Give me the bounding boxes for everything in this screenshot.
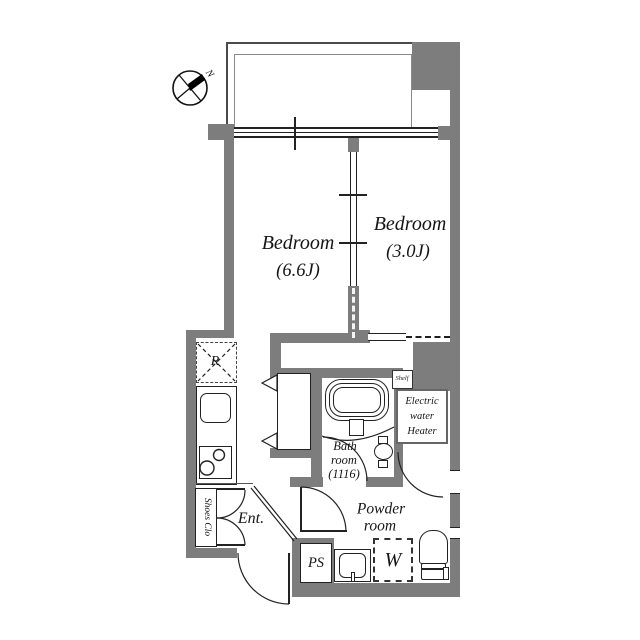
water-heater-label-line3: Heater [407, 427, 436, 438]
bedroom-main-size: (6.6J) [276, 262, 320, 281]
plan-linework [0, 0, 640, 640]
compass-icon [173, 71, 207, 105]
closet-door-triangle [262, 375, 277, 391]
stove-burner [200, 461, 214, 475]
shoes-closet-label: Shoes Clo [201, 498, 211, 536]
powder-room-label-line2: room [364, 518, 396, 534]
floor-plan: N Bedroom (6.6J) Bedroom (3.0J) Bath roo… [0, 0, 640, 640]
entrance-label: Ent. [238, 511, 264, 527]
water-heater-label-line1: Electric [405, 397, 438, 408]
heater-door-swing [398, 452, 443, 497]
water-heater-label-line2: water [410, 412, 434, 423]
pipe-space-label: PS [308, 556, 324, 571]
powder-door-swing [301, 487, 346, 532]
stove-burner [214, 450, 225, 461]
bathroom-label-line1: Bath [333, 440, 357, 453]
bathroom-label-line3: (1116) [328, 468, 359, 481]
bedroom-second-size: (3.0J) [386, 243, 430, 262]
bedroom-second-label: Bedroom [374, 214, 447, 234]
shelf-label: Shelf [396, 376, 409, 383]
washer-label: W [385, 550, 402, 570]
closet-door-triangle [262, 433, 277, 449]
entrance-door-swing [238, 553, 289, 604]
bedroom-main-label: Bedroom [262, 233, 335, 253]
powder-room-label-line1: Powder [357, 501, 405, 517]
refrigerator-label: R [211, 355, 220, 369]
bathroom-label-line2: room [331, 454, 357, 467]
